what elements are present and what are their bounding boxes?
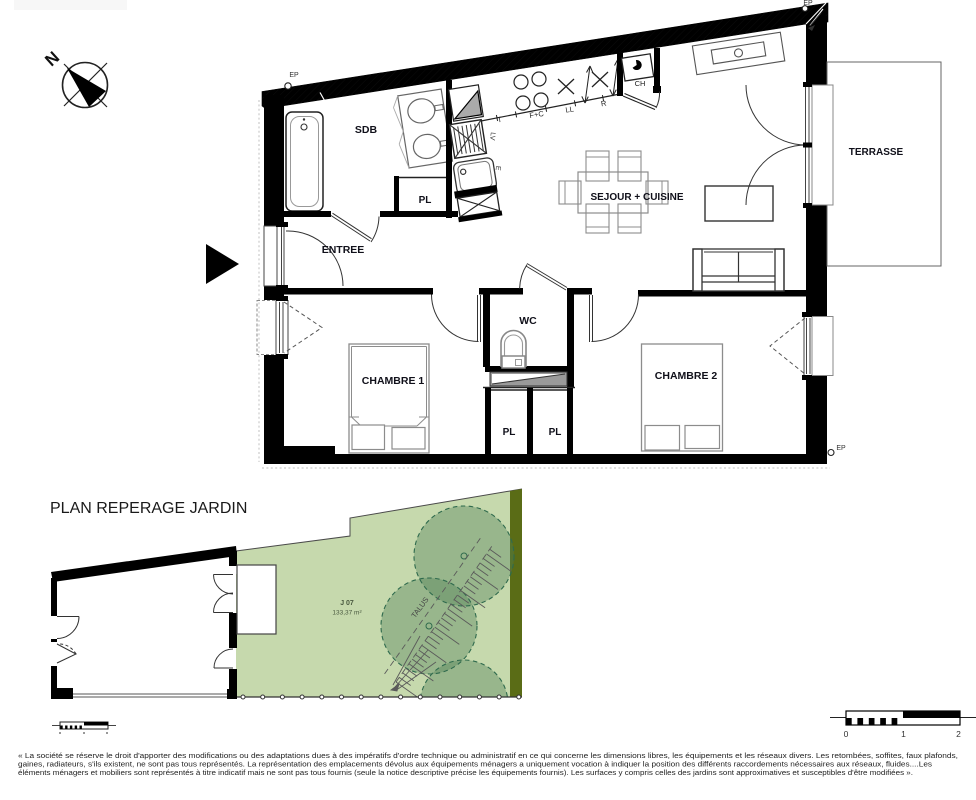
svg-text:« La société se réserve le dro: « La société se réserve le droit d'appor… [18, 753, 958, 760]
svg-text:TERRASSE: TERRASSE [849, 147, 904, 158]
svg-text:0: 0 [844, 729, 849, 739]
svg-text:LV: LV [488, 132, 496, 141]
svg-text:EP: EP [289, 72, 299, 79]
svg-text:133,37 m²: 133,37 m² [332, 610, 362, 617]
svg-text:EP: EP [836, 445, 846, 452]
svg-text:2: 2 [956, 729, 961, 739]
svg-text:WC: WC [519, 315, 537, 327]
svg-text:PL: PL [503, 427, 516, 438]
svg-text:1: 1 [901, 729, 906, 739]
svg-text:gaines, radiateurs, s'ils exis: gaines, radiateurs, s'ils existent, ne s… [18, 762, 933, 769]
svg-text:SDB: SDB [355, 124, 378, 136]
svg-text:PLAN REPERAGE JARDIN: PLAN REPERAGE JARDIN [50, 500, 247, 517]
svg-text:LL: LL [565, 104, 575, 114]
svg-text:PL: PL [549, 427, 562, 438]
svg-text:PL: PL [419, 195, 432, 206]
svg-text:CH: CH [635, 79, 646, 88]
svg-text:CHAMBRE 1: CHAMBRE 1 [362, 375, 425, 387]
svg-text:SEJOUR + CUISINE: SEJOUR + CUISINE [590, 192, 683, 203]
svg-text:CHAMBRE 2: CHAMBRE 2 [655, 370, 718, 382]
svg-text:ENTREE: ENTREE [322, 244, 365, 256]
svg-text:J 07: J 07 [340, 600, 354, 607]
svg-text:éléments ménagers et mobiliers: éléments ménagers et mobiliers sont repr… [18, 770, 913, 777]
